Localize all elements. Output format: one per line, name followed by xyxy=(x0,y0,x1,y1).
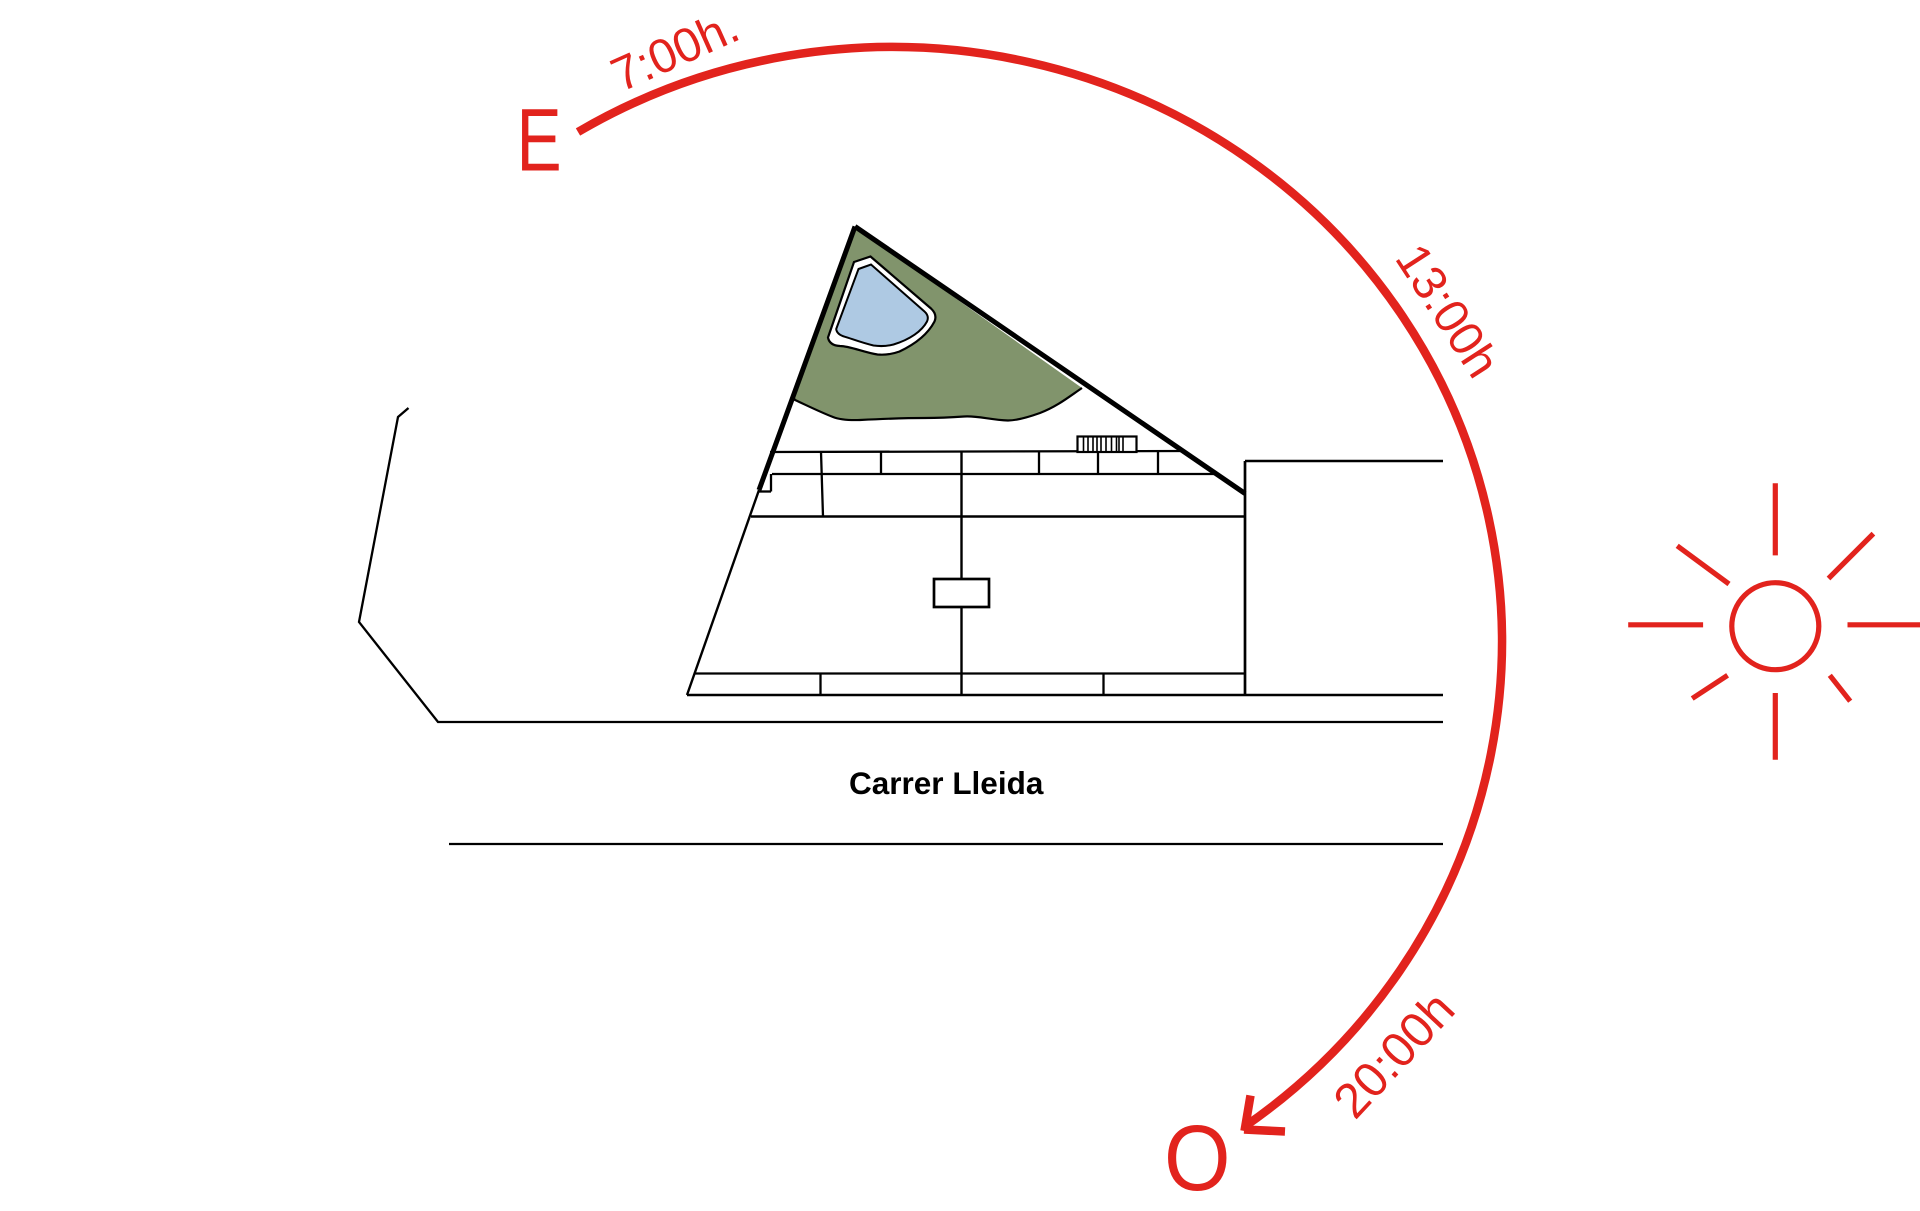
svg-text:Carrer Lleida: Carrer Lleida xyxy=(849,765,1044,801)
svg-text:E: E xyxy=(517,89,562,189)
svg-text:O: O xyxy=(1164,1106,1231,1210)
